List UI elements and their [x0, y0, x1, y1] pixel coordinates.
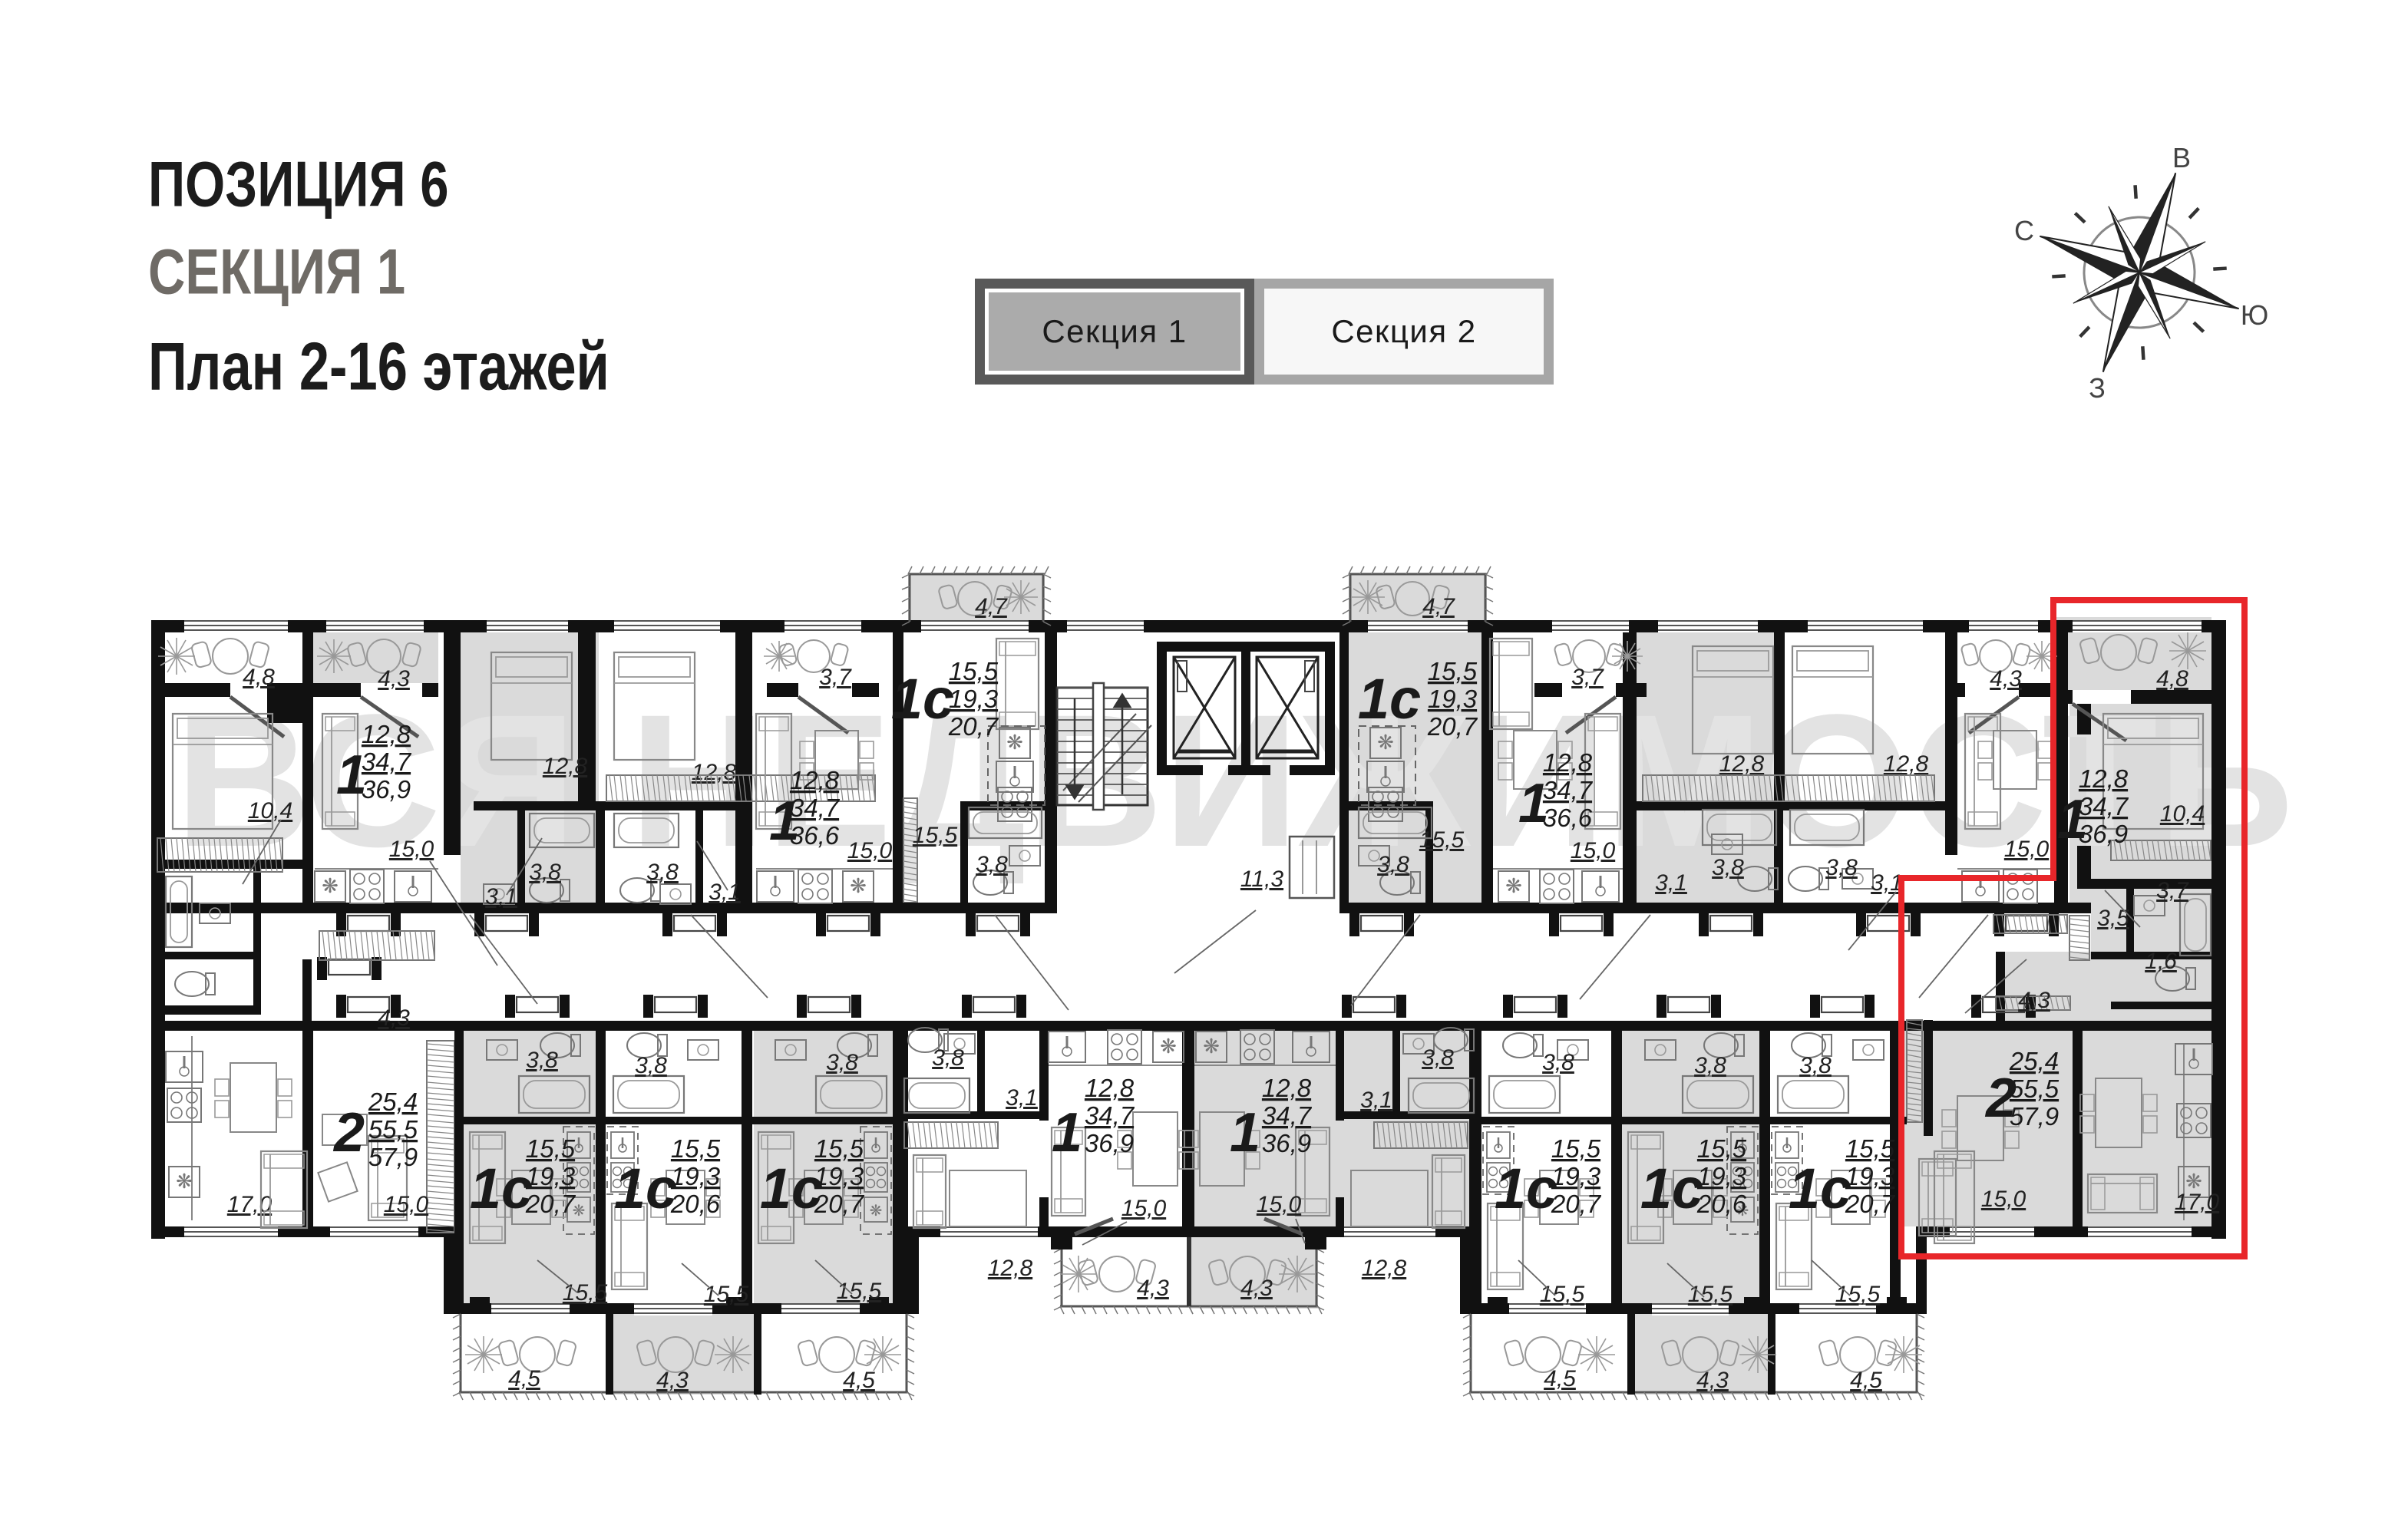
svg-text:12,8: 12,8 — [988, 1256, 1033, 1281]
svg-text:12,8: 12,8 — [543, 754, 588, 779]
svg-text:❋: ❋ — [1006, 731, 1023, 754]
svg-text:15,0: 15,0 — [1981, 1187, 2026, 1212]
svg-text:15,5: 15,5 — [526, 1134, 576, 1163]
svg-text:25,4: 25,4 — [2009, 1047, 2059, 1075]
svg-text:15,0: 15,0 — [2004, 837, 2050, 862]
svg-text:36,9: 36,9 — [1085, 1129, 1134, 1157]
svg-text:❋: ❋ — [1160, 1035, 1177, 1058]
svg-text:17,0: 17,0 — [2175, 1190, 2220, 1215]
svg-text:15,5: 15,5 — [704, 1282, 749, 1307]
svg-text:15,0: 15,0 — [1257, 1192, 1302, 1217]
svg-text:3,8: 3,8 — [1422, 1045, 1454, 1071]
svg-text:15,5: 15,5 — [1845, 1134, 1895, 1163]
svg-text:10,4: 10,4 — [248, 798, 292, 824]
svg-text:15,0: 15,0 — [1571, 838, 1616, 863]
svg-text:❋: ❋ — [870, 1203, 883, 1220]
svg-text:15,5: 15,5 — [1419, 827, 1465, 853]
svg-text:15,5: 15,5 — [814, 1134, 864, 1163]
svg-text:❋: ❋ — [176, 1170, 193, 1193]
svg-text:4,8: 4,8 — [2156, 666, 2188, 692]
svg-text:3,5: 3,5 — [2097, 906, 2129, 931]
svg-text:15,5: 15,5 — [1551, 1134, 1601, 1163]
svg-text:34,7: 34,7 — [2079, 792, 2129, 820]
svg-text:3,8: 3,8 — [646, 860, 679, 885]
svg-text:19,3: 19,3 — [1697, 1162, 1747, 1190]
svg-text:3,8: 3,8 — [1377, 852, 1409, 877]
svg-text:❋: ❋ — [1203, 1035, 1220, 1058]
svg-text:3,8: 3,8 — [1825, 855, 1858, 880]
svg-text:12,8: 12,8 — [790, 766, 840, 794]
svg-text:12,8: 12,8 — [1884, 751, 1929, 777]
svg-text:3,8: 3,8 — [529, 860, 561, 885]
svg-text:19,3: 19,3 — [1845, 1162, 1895, 1190]
svg-text:20,7: 20,7 — [1551, 1190, 1602, 1218]
svg-text:19,3: 19,3 — [814, 1162, 864, 1190]
svg-text:Ю: Ю — [2241, 299, 2268, 331]
svg-text:17,0: 17,0 — [227, 1192, 273, 1217]
svg-text:15,5: 15,5 — [1688, 1282, 1733, 1307]
svg-text:4,8: 4,8 — [243, 665, 275, 690]
svg-text:4,3: 4,3 — [1137, 1276, 1169, 1301]
svg-text:З: З — [2089, 372, 2106, 404]
svg-text:3,8: 3,8 — [932, 1045, 964, 1071]
svg-text:15,5: 15,5 — [1428, 657, 1478, 685]
svg-text:4,3: 4,3 — [1990, 666, 2022, 692]
svg-text:2: 2 — [332, 1102, 365, 1164]
svg-text:12,8: 12,8 — [2079, 764, 2129, 793]
svg-text:1с: 1с — [760, 1157, 823, 1220]
svg-text:12,8: 12,8 — [1719, 751, 1765, 777]
svg-text:12,8: 12,8 — [1262, 1074, 1312, 1102]
svg-text:34,7: 34,7 — [790, 794, 841, 822]
svg-text:3,8: 3,8 — [1542, 1050, 1574, 1075]
svg-text:57,9: 57,9 — [368, 1143, 418, 1171]
svg-text:3,8: 3,8 — [635, 1053, 667, 1078]
svg-text:34,7: 34,7 — [1262, 1101, 1313, 1130]
svg-text:1с: 1с — [1640, 1157, 1703, 1220]
svg-text:1: 1 — [1230, 1102, 1260, 1164]
svg-text:С: С — [2014, 215, 2034, 246]
svg-text:12,8: 12,8 — [1362, 1256, 1407, 1281]
svg-text:19,3: 19,3 — [671, 1162, 721, 1190]
svg-text:4,3: 4,3 — [656, 1368, 689, 1393]
svg-text:36,9: 36,9 — [1262, 1129, 1311, 1157]
svg-text:1,6: 1,6 — [2145, 949, 2177, 974]
svg-text:1с: 1с — [1495, 1157, 1557, 1220]
svg-text:1с: 1с — [1789, 1157, 1851, 1220]
svg-text:4,3: 4,3 — [378, 666, 410, 692]
svg-text:В: В — [2172, 142, 2191, 173]
svg-text:36,9: 36,9 — [2079, 820, 2128, 848]
svg-text:4,3: 4,3 — [1240, 1276, 1273, 1301]
svg-text:15,5: 15,5 — [1697, 1134, 1747, 1163]
svg-text:20,7: 20,7 — [1845, 1190, 1896, 1218]
svg-text:15,5: 15,5 — [563, 1280, 608, 1306]
svg-text:20,7: 20,7 — [1427, 712, 1478, 741]
svg-text:19,3: 19,3 — [1428, 685, 1478, 713]
svg-text:3,1: 3,1 — [709, 880, 741, 905]
svg-text:55,5: 55,5 — [368, 1115, 418, 1144]
svg-text:1с: 1с — [614, 1157, 677, 1220]
svg-text:4,7: 4,7 — [975, 594, 1008, 619]
svg-text:3,1: 3,1 — [1360, 1088, 1392, 1113]
svg-text:1с: 1с — [470, 1157, 533, 1220]
svg-text:15,0: 15,0 — [847, 838, 893, 863]
svg-text:20,7: 20,7 — [814, 1190, 865, 1218]
svg-text:12,8: 12,8 — [1085, 1074, 1135, 1102]
svg-text:1с: 1с — [1358, 667, 1421, 731]
svg-text:36,9: 36,9 — [362, 775, 411, 804]
svg-text:3,1: 3,1 — [485, 884, 517, 909]
svg-text:4,5: 4,5 — [508, 1366, 540, 1391]
svg-text:3,8: 3,8 — [976, 852, 1008, 877]
svg-text:15,5: 15,5 — [1540, 1282, 1585, 1307]
svg-text:❋: ❋ — [850, 874, 867, 897]
svg-text:20,6: 20,6 — [670, 1190, 721, 1218]
svg-text:3,8: 3,8 — [1799, 1053, 1832, 1078]
svg-text:15,0: 15,0 — [1121, 1196, 1167, 1221]
svg-text:4,3: 4,3 — [378, 1005, 410, 1031]
svg-text:3,1: 3,1 — [1871, 870, 1903, 896]
svg-text:20,7: 20,7 — [525, 1190, 576, 1218]
svg-text:19,3: 19,3 — [949, 685, 999, 713]
svg-text:36,6: 36,6 — [790, 821, 840, 850]
svg-text:4,5: 4,5 — [843, 1368, 875, 1393]
svg-text:3,8: 3,8 — [826, 1050, 858, 1075]
svg-text:12,8: 12,8 — [362, 720, 411, 748]
svg-text:10,4: 10,4 — [2160, 801, 2205, 827]
svg-text:4,7: 4,7 — [1422, 594, 1455, 619]
svg-text:1с: 1с — [891, 667, 954, 731]
svg-text:3,8: 3,8 — [1694, 1053, 1726, 1078]
svg-text:4,3: 4,3 — [1696, 1368, 1729, 1393]
svg-text:57,9: 57,9 — [2010, 1102, 2059, 1131]
svg-text:19,3: 19,3 — [526, 1162, 576, 1190]
svg-text:4,5: 4,5 — [1850, 1368, 1882, 1393]
svg-text:34,7: 34,7 — [1543, 776, 1594, 804]
svg-text:15,5: 15,5 — [1835, 1282, 1881, 1307]
svg-text:3,8: 3,8 — [1712, 855, 1744, 880]
svg-text:15,5: 15,5 — [913, 823, 958, 848]
svg-text:3,1: 3,1 — [1655, 870, 1687, 896]
svg-text:3,1: 3,1 — [1006, 1085, 1038, 1111]
svg-text:55,5: 55,5 — [2010, 1074, 2060, 1103]
svg-text:❋: ❋ — [1377, 731, 1394, 754]
svg-text:❋: ❋ — [322, 874, 339, 897]
svg-text:15,5: 15,5 — [949, 657, 999, 685]
svg-text:34,7: 34,7 — [362, 748, 412, 776]
svg-text:20,7: 20,7 — [948, 712, 999, 741]
svg-text:15,5: 15,5 — [837, 1279, 882, 1304]
svg-text:❋: ❋ — [1505, 874, 1522, 897]
svg-text:34,7: 34,7 — [1085, 1101, 1135, 1130]
svg-text:1: 1 — [1052, 1102, 1082, 1164]
svg-text:12,8: 12,8 — [1543, 748, 1593, 777]
svg-text:15,5: 15,5 — [671, 1134, 721, 1163]
svg-text:19,3: 19,3 — [1551, 1162, 1601, 1190]
svg-text:3,8: 3,8 — [526, 1048, 558, 1073]
svg-text:12,8: 12,8 — [692, 760, 737, 785]
svg-text:3,7: 3,7 — [2156, 878, 2189, 903]
svg-text:3,7: 3,7 — [1571, 665, 1604, 690]
svg-text:11,3: 11,3 — [1240, 867, 1283, 892]
svg-text:4,3: 4,3 — [2018, 988, 2050, 1013]
svg-text:15,0: 15,0 — [384, 1192, 429, 1217]
svg-text:3,7: 3,7 — [819, 665, 852, 690]
svg-text:25,4: 25,4 — [368, 1088, 418, 1116]
svg-text:20,6: 20,6 — [1696, 1190, 1747, 1218]
svg-text:4,5: 4,5 — [1544, 1366, 1576, 1391]
svg-text:15,0: 15,0 — [389, 837, 434, 862]
svg-text:36,6: 36,6 — [1543, 804, 1593, 832]
